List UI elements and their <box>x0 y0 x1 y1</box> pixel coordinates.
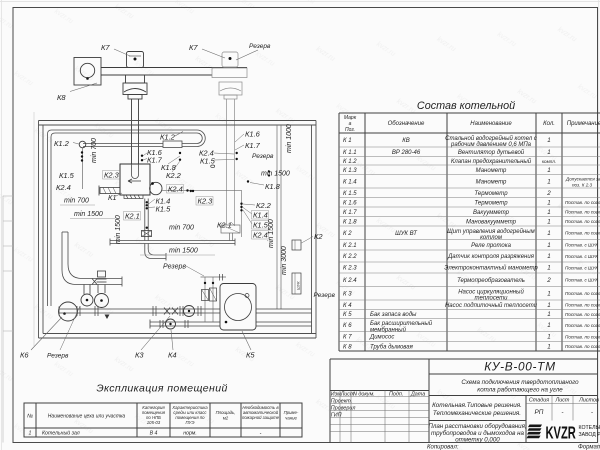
svg-text:Постав. по согла: Постав. по согла <box>565 210 600 215</box>
svg-text:ПУЭ: ПУЭ <box>186 420 195 425</box>
svg-text:Щит управления водогрейным: Щит управления водогрейным <box>447 228 534 235</box>
svg-text:Клапан предохранительный: Клапан предохранительный <box>451 158 532 165</box>
svg-text:Резерв: Резерв <box>163 264 186 271</box>
svg-text:К2: К2 <box>314 232 323 241</box>
svg-text:Термометр: Термометр <box>474 191 508 197</box>
svg-text:К5: К5 <box>246 351 255 360</box>
svg-text:min 1500: min 1500 <box>115 215 122 244</box>
svg-text:К7: К7 <box>189 43 198 52</box>
svg-text:рабочим давлением 0,6 МПа: рабочим давлением 0,6 МПа <box>450 142 532 148</box>
svg-text:min 1500: min 1500 <box>261 171 290 178</box>
svg-text:мембранный: мембранный <box>370 326 407 333</box>
svg-text:Листов: Листов <box>578 398 599 404</box>
svg-text:Площадь,: Площадь, <box>216 410 236 415</box>
svg-text:Постав. по согла: Постав. по согла <box>565 323 600 328</box>
svg-text:КУ-В-00-ТМ: КУ-В-00-ТМ <box>484 360 555 374</box>
svg-text:К 2.3: К 2.3 <box>343 266 357 272</box>
svg-text:ЗАВОД РО: ЗАВОД РО <box>579 432 600 438</box>
svg-text:К 1.6: К 1.6 <box>343 200 357 206</box>
svg-text:-: - <box>561 409 563 416</box>
svg-text:поз. К 2.3: поз. К 2.3 <box>572 183 593 188</box>
svg-text:1: 1 <box>547 265 550 272</box>
svg-text:К1.5: К1.5 <box>253 221 269 230</box>
svg-text:К 1.8: К 1.8 <box>343 219 357 225</box>
svg-text:1: 1 <box>547 334 550 341</box>
svg-text:Постав. с ШУК: Постав. с ШУК <box>565 278 598 283</box>
svg-text:-: - <box>591 409 593 416</box>
svg-text:1: 1 <box>547 149 550 156</box>
svg-text:К4: К4 <box>168 351 177 360</box>
svg-text:Резерв: Резерв <box>249 43 271 50</box>
svg-text:К1.7: К1.7 <box>245 141 261 150</box>
svg-text:К 8: К 8 <box>343 344 352 350</box>
svg-text:Постав. по согла: Постав. по согла <box>565 303 600 308</box>
svg-text:Бак расширительный: Бак расширительный <box>370 320 433 327</box>
svg-text:К1.4: К1.4 <box>253 211 268 220</box>
svg-text:Экспликация помещений: Экспликация помещений <box>96 383 227 395</box>
svg-text:Постав. по согла: Постав. по согла <box>565 231 600 236</box>
svg-text:котлом: котлом <box>480 235 502 241</box>
svg-text:К1: К1 <box>108 193 117 202</box>
svg-text:К 1.2: К 1.2 <box>343 159 357 165</box>
svg-text:Насос подпиточный теплосети: Насос подпиточный теплосети <box>445 302 538 309</box>
svg-text:К 1.1: К 1.1 <box>343 150 357 156</box>
svg-text:К 2: К 2 <box>343 231 352 237</box>
svg-text:К1.8: К1.8 <box>265 182 281 191</box>
svg-text:Постав. по согла: Постав. по согла <box>565 291 600 296</box>
svg-text:Формат: Формат <box>578 445 600 450</box>
svg-text:1: 1 <box>547 178 550 185</box>
svg-text:Дата: Дата <box>410 391 425 397</box>
svg-text:К 5: К 5 <box>343 312 352 318</box>
svg-text:К1.2: К1.2 <box>54 139 70 148</box>
svg-text:Электроконтактный манометр: Электроконтактный манометр <box>444 265 538 272</box>
svg-text:KVZR: KVZR <box>546 423 577 443</box>
svg-text:Труба дымовая: Труба дымовая <box>370 344 414 350</box>
svg-text:В 4: В 4 <box>150 431 158 437</box>
svg-text:Лист: Лист <box>555 398 570 404</box>
svg-text:min 1000: min 1000 <box>286 124 293 153</box>
svg-text:К1.6: К1.6 <box>245 130 261 139</box>
svg-text:Постав. с ШУК: Постав. с ШУК <box>565 265 598 270</box>
svg-text:Постав. с ШУК: Постав. с ШУК <box>565 243 598 248</box>
svg-text:1: 1 <box>547 290 550 297</box>
svg-text:Проект.: Проект. <box>331 398 352 404</box>
svg-text:1: 1 <box>547 322 550 329</box>
svg-text:Поз.: Поз. <box>345 127 355 133</box>
svg-text:Примечание: Примечание <box>567 121 600 127</box>
svg-text:Манометр: Манометр <box>476 179 507 185</box>
svg-text:чание: чание <box>285 416 297 421</box>
svg-text:К 1.3: К 1.3 <box>343 168 357 174</box>
svg-text:Вентилятор дутьевой: Вентилятор дутьевой <box>458 149 525 156</box>
svg-text:Стадия: Стадия <box>529 398 549 404</box>
svg-text:К 3: К 3 <box>343 291 352 297</box>
svg-text:Бак запаса воды: Бак запаса воды <box>370 312 417 318</box>
svg-text:теплосети: теплосети <box>475 296 509 302</box>
svg-text:Состав котельной: Состав котельной <box>417 100 515 112</box>
svg-text:План расстановки оборудования,: План расстановки оборудования, <box>428 423 526 430</box>
svg-text:К2.4: К2.4 <box>168 185 183 194</box>
svg-text:Копировал:: Копировал: <box>427 445 459 450</box>
svg-text:К1.5: К1.5 <box>200 157 216 166</box>
svg-text:К 6: К 6 <box>343 323 352 329</box>
svg-text:№: № <box>27 414 33 420</box>
svg-text:Схема подключения твердотоплив: Схема подключения твердотопливного <box>461 379 579 386</box>
svg-text:К 7: К 7 <box>343 335 352 341</box>
svg-text:Термопреобразователь: Термопреобразователь <box>457 278 525 284</box>
svg-text:котла работающего на угле: котла работающего на угле <box>477 387 563 394</box>
svg-text:1: 1 <box>547 253 550 260</box>
svg-text:РП: РП <box>535 409 544 416</box>
svg-text:Насос циркуляционный: Насос циркуляционный <box>458 288 524 295</box>
svg-text:К2.4: К2.4 <box>253 231 268 240</box>
svg-text:ВР 280-46: ВР 280-46 <box>392 150 421 156</box>
svg-text:ГИП: ГИП <box>331 412 342 418</box>
svg-text:К 1.5: К 1.5 <box>343 191 357 197</box>
svg-text:min 1500: min 1500 <box>74 211 103 218</box>
svg-text:К 2.4: К 2.4 <box>343 278 357 284</box>
svg-text:Обозначение: Обозначение <box>388 121 425 127</box>
svg-text:К 4: К 4 <box>343 303 352 309</box>
svg-text:Термометр: Термометр <box>474 200 508 206</box>
svg-text:отметку 0,000: отметку 0,000 <box>455 437 500 444</box>
svg-text:м2: м2 <box>223 416 229 421</box>
svg-text:2: 2 <box>546 190 551 197</box>
svg-text:К2.1: К2.1 <box>125 212 140 221</box>
svg-text:Резерв: Резерв <box>47 353 69 360</box>
svg-text:К2.4: К2.4 <box>56 183 71 192</box>
svg-text:К 2.2: К 2.2 <box>343 254 357 260</box>
svg-text:К7: К7 <box>101 43 110 52</box>
svg-text:К2.2: К2.2 <box>256 201 272 210</box>
svg-text:Реле протока: Реле протока <box>471 243 512 249</box>
svg-text:min 700: min 700 <box>169 225 194 232</box>
svg-text:Котельная.Типовые решения.: Котельная.Типовые решения. <box>432 402 522 409</box>
svg-text:Димосос: Димосос <box>369 335 394 341</box>
svg-text:1: 1 <box>547 343 550 350</box>
svg-text:Кол.: Кол. <box>543 121 555 127</box>
svg-text:min 1500: min 1500 <box>169 248 198 255</box>
svg-text:2: 2 <box>546 277 551 284</box>
svg-text:норм.: норм. <box>183 431 197 437</box>
svg-text:КОТЕЛЬНЫ: КОТЕЛЬНЫ <box>579 425 600 431</box>
svg-text:1: 1 <box>29 431 32 437</box>
svg-text:min 1500: min 1500 <box>268 219 275 248</box>
svg-text:Приме-: Приме- <box>284 410 299 415</box>
svg-text:1: 1 <box>547 311 550 318</box>
svg-text:ШУК ВТ: ШУК ВТ <box>395 231 418 237</box>
svg-text:Резерв: Резерв <box>314 292 336 299</box>
svg-text:К2.2: К2.2 <box>166 171 182 180</box>
svg-text:компл.: компл. <box>542 159 556 164</box>
svg-text:Постав. по согла: Постав. по согла <box>565 344 600 349</box>
svg-text:К2.3: К2.3 <box>104 171 120 180</box>
svg-text:К1.2: К1.2 <box>160 133 176 142</box>
svg-text:Наименование: Наименование <box>470 121 512 127</box>
svg-text:Стальной водогрейный котел с: Стальной водогрейный котел с <box>445 135 537 142</box>
svg-text:min 3000: min 3000 <box>281 246 288 275</box>
svg-text:min 700: min 700 <box>91 138 98 163</box>
svg-text:-: - <box>260 431 262 437</box>
svg-text:К 1.4: К 1.4 <box>343 179 357 185</box>
svg-text:К 2.1: К 2.1 <box>343 243 357 249</box>
svg-text:Вакуумметр: Вакуумметр <box>473 210 510 216</box>
svg-text:КВ: КВ <box>402 138 410 144</box>
svg-text:К3: К3 <box>135 351 144 360</box>
svg-text:Тепломеханические решения.: Тепломеханические решения. <box>433 410 521 417</box>
svg-text:Резерв: Резерв <box>252 153 274 160</box>
svg-text:К1.5: К1.5 <box>59 171 75 180</box>
svg-text:Проверил: Проверил <box>331 405 356 411</box>
svg-text:1: 1 <box>547 137 550 144</box>
svg-text:Наименование цеха или участка: Наименование цеха или участка <box>48 414 126 420</box>
svg-text:Постав. с ШУК: Постав. с ШУК <box>565 254 598 259</box>
svg-text:105-03: 105-03 <box>147 420 161 425</box>
svg-text:N докум.: N докум. <box>353 391 375 397</box>
svg-text:1: 1 <box>547 209 550 216</box>
svg-text:1: 1 <box>547 242 550 249</box>
svg-text:К1.5: К1.5 <box>156 205 172 214</box>
svg-text:Датчик контроля разряжения: Датчик контроля разряжения <box>447 254 535 260</box>
svg-text:Допускается зам: Допускается зам <box>565 177 600 182</box>
svg-text:min 700: min 700 <box>64 198 89 205</box>
svg-text:Котельный зал: Котельный зал <box>42 430 80 437</box>
svg-text:1: 1 <box>547 302 550 309</box>
svg-text:К2.3: К2.3 <box>198 197 214 206</box>
svg-text:Постав. по согла: Постав. по согла <box>565 219 600 224</box>
svg-text:К2.1: К2.1 <box>217 221 232 230</box>
svg-text:ШУК: ШУК <box>296 281 301 290</box>
svg-text:Манометр: Манометр <box>476 168 507 174</box>
svg-text:1: 1 <box>547 167 550 174</box>
svg-text:Мановакуумметр: Мановакуумметр <box>466 219 517 225</box>
svg-text:Подп.: Подп. <box>389 391 403 397</box>
svg-text:пожарной защите: пожарной защите <box>242 415 280 420</box>
svg-text:1: 1 <box>547 218 550 225</box>
svg-text:1: 1 <box>547 230 550 237</box>
svg-text:1: 1 <box>547 199 550 206</box>
svg-text:К 1.7: К 1.7 <box>343 210 357 216</box>
svg-text:Постав. по согла: Постав. по согла <box>565 312 600 317</box>
svg-text:К 1: К 1 <box>343 138 352 144</box>
svg-text:Постав. по согла: Постав. по согла <box>565 200 600 205</box>
svg-text:Постав. по согла: Постав. по согла <box>565 334 600 339</box>
svg-text:К8: К8 <box>57 93 66 102</box>
svg-text:К6: К6 <box>20 351 29 360</box>
